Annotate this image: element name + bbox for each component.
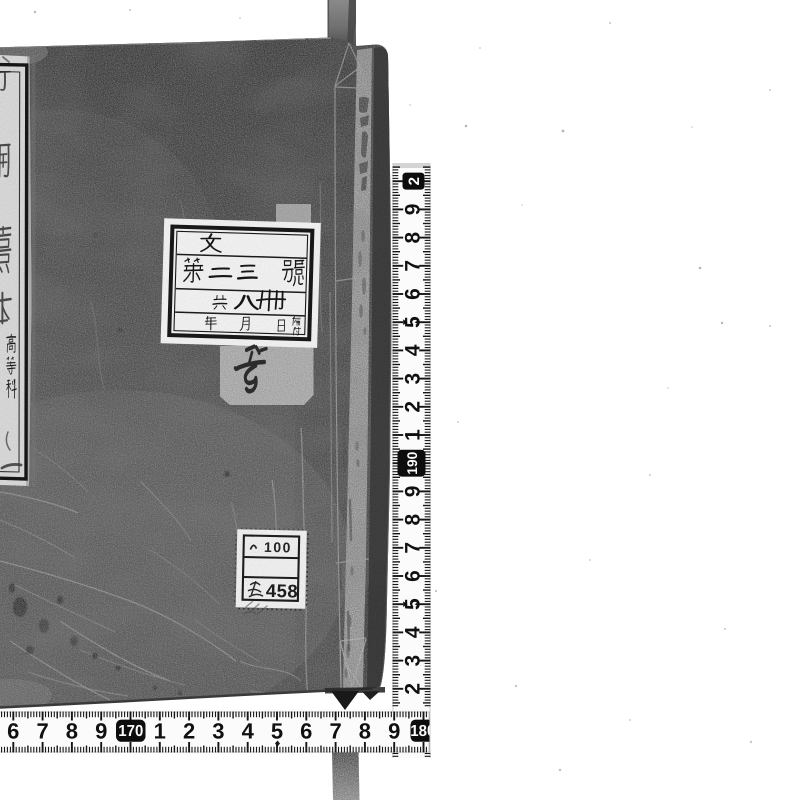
svg-text:9: 9 xyxy=(95,718,107,743)
svg-text:170: 170 xyxy=(118,723,143,740)
svg-text:5: 5 xyxy=(401,316,424,328)
svg-text:9: 9 xyxy=(401,486,424,498)
svg-text:8: 8 xyxy=(401,231,424,243)
svg-text:190: 190 xyxy=(404,451,420,474)
svg-text:6: 6 xyxy=(300,718,312,743)
svg-text:3: 3 xyxy=(212,718,224,743)
svg-text:8: 8 xyxy=(66,718,78,743)
svg-text:9: 9 xyxy=(401,204,424,216)
svg-text:7: 7 xyxy=(329,718,341,743)
svg-text:4: 4 xyxy=(401,626,424,638)
svg-text:9: 9 xyxy=(388,718,400,743)
svg-text:100: 100 xyxy=(264,539,292,556)
svg-text:7: 7 xyxy=(401,542,424,554)
svg-text:6: 6 xyxy=(401,288,424,300)
svg-text:5: 5 xyxy=(271,718,283,743)
svg-text:7: 7 xyxy=(401,260,424,272)
svg-text:5: 5 xyxy=(401,598,424,610)
svg-text:3: 3 xyxy=(401,373,424,385)
svg-text:2: 2 xyxy=(183,718,195,743)
svg-text:2: 2 xyxy=(406,177,423,185)
svg-text:2: 2 xyxy=(401,401,424,413)
svg-text:458: 458 xyxy=(266,580,299,602)
svg-text:7: 7 xyxy=(36,718,48,743)
svg-text:4: 4 xyxy=(242,718,255,743)
svg-text:6: 6 xyxy=(401,570,424,582)
svg-text:4: 4 xyxy=(401,344,424,356)
svg-text:8: 8 xyxy=(401,513,424,525)
svg-text:8: 8 xyxy=(359,718,371,743)
svg-text:6: 6 xyxy=(7,718,19,743)
svg-text:1: 1 xyxy=(401,429,424,441)
svg-text:2: 2 xyxy=(401,683,424,695)
svg-text:3: 3 xyxy=(401,655,424,667)
svg-text:1: 1 xyxy=(154,718,166,743)
